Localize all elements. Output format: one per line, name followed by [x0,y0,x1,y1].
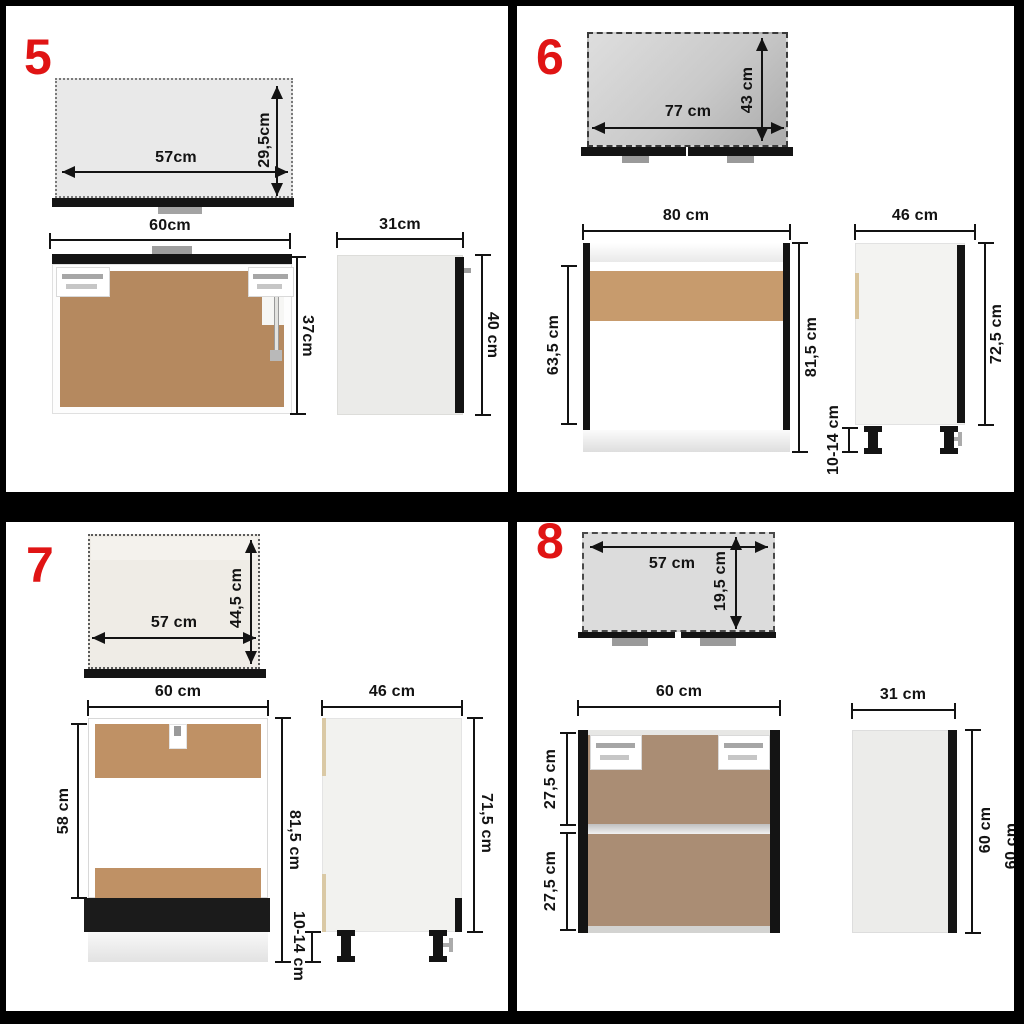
panel-6-leg-height-dim-line [848,428,850,452]
panel-6-side-leg-left [868,428,878,452]
panel-5-top-width-label: 57cm [155,149,197,167]
panel-7-side-door-edge [455,898,462,932]
panel-7-front-plinth [84,898,270,932]
panel-7-side-height-dim-line [473,718,475,932]
panel-8-lower-section-label: 27,5 cm [542,851,560,911]
panel-7-front-width-label: 60 cm [155,683,201,701]
panel-6-front-open-area [590,321,783,430]
panel-8-front-width-dim-line [578,706,780,708]
panel-7-top-view-band [91,537,257,560]
panel-7-front-bottom-panel [95,868,261,898]
panel-7-side-leg-bracket [449,938,453,952]
panel-6-top-view-handle-left [622,156,649,163]
panel-6-side-depth-label: 46 cm [892,207,938,225]
panel-5-top-view-front-edge [52,198,294,207]
panel-6-side-height-dim-line [984,243,986,425]
panel-5-top-depth-dim-line [276,86,278,196]
panel-8-side-depth-label: 31 cm [880,686,926,704]
panel-8-top-width-label: 57 cm [649,555,695,573]
panel-7-top-depth-dim-line [250,540,252,664]
panel-8-top-view-handle-right [700,638,736,646]
panel-6-front-top-rail [590,243,783,262]
panel-5-side-height-label: 40 cm [483,312,501,358]
panel-6-front-height-dim-line [798,243,800,452]
panel-6-front-side-panel-left [583,243,590,430]
panel-7-side-depth-label: 46 cm [369,683,415,701]
panel-8-side-depth-dim-line [852,709,955,711]
panel-6-front-interior-height-label: 63,5 cm [545,315,563,375]
panel-5-hinge-right [248,267,294,297]
panel-7-number: 7 [26,540,54,590]
panel-6-number: 6 [536,32,564,82]
panel-7-side-depth-dim-line [322,706,462,708]
panel-7-leg-height-label: 10-14 cm [289,911,307,981]
panel-8-upper-section-dim-line [566,733,568,825]
panel-6-leg-height-label: 10-14 cm [825,405,843,475]
panel-5-side-depth-dim-line [337,238,463,240]
panel-8-top-depth-dim-line [735,537,737,629]
panel-6-front-back-panel [590,271,783,321]
panel-5-front-width-dim-line [50,239,290,241]
panel-8-front-door-edge-right [770,730,780,933]
panel-6-side-height-label: 72,5 cm [988,304,1006,364]
panel-8-side-body [852,730,950,933]
panel-6-side-leg-bracket [958,432,962,446]
panel-7-side-cut-edge-bottom [322,874,326,932]
panel-5-top-width-dim-line [62,171,288,173]
panel-5-side-door-edge [455,257,464,413]
panel-8-hinge-left [590,735,642,770]
product-dimension-sheet: 5 57cm 29,5cm 60cm 37cm 31cm 40 cm 6 [0,0,1024,1024]
panel-5-top-view-handle [158,207,202,214]
panel-7-front-width-dim-line [88,706,268,708]
panel-8-side-height-label: 60 cm [977,807,995,853]
panel-5-top-depth-label: 29,5cm [256,112,274,167]
panel-5-strut-bracket [270,350,282,361]
panel-7-side-leg-right [433,932,443,960]
panel-8-front-width-label: 60 cm [656,683,702,701]
panel-5-hinge-left [56,267,110,297]
panel-8-front-bottom-edge [588,926,770,933]
panel-6-front-plinth [583,430,790,452]
panel-6-front-width-dim-line [583,230,790,232]
panel-8-top-depth-label: 19,5 cm [712,551,730,611]
panel-5-front-width-label: 60cm [149,217,191,235]
panel-5-front-height-label: 37cm [298,315,316,357]
panel-6-top-depth-dim-line [761,38,763,141]
panel-5-number: 5 [24,32,52,82]
panel-7-leg-height-dim-line [311,932,313,962]
panel-8-number: 8 [536,516,564,566]
panel-8-side-height-dim-line [971,730,973,933]
divider-vertical [508,0,517,1024]
panel-6-side-body [855,243,965,425]
panel-7-side-cut-edge-top [322,718,326,776]
panel-6-top-view-handle-right [727,156,754,163]
panel-8-side-door-edge [948,730,957,933]
panel-7-top-depth-label: 44,5 cm [228,568,246,628]
panel-6-side-depth-dim-line [855,230,975,232]
panel-5-side-handle [464,268,471,273]
panel-7-front-base [88,932,268,962]
panel-6-front-side-panel-right [783,243,790,430]
panel-6-top-depth-label: 43 cm [739,67,757,113]
panel-8-top-view-handle-left [612,638,648,646]
panel-7-top-width-label: 57 cm [151,614,197,632]
panel-6-side-door-edge [957,245,965,423]
panel-8-front-door-edge-left [578,730,588,933]
panel-8-upper-section-label: 27,5 cm [542,749,560,809]
panel-7-front-interior-height-label: 58 cm [55,788,73,834]
panel-7-side-body [322,718,462,932]
panel-7-side-leg-left [341,932,351,960]
panel-7-front-notch-fitting [174,726,181,736]
panel-8-hinge-right [718,735,770,770]
panel-6-front-interior-height-dim-line [567,266,569,424]
panel-5-side-depth-label: 31cm [379,216,421,234]
panel-5-front-open-door-edge [52,254,292,264]
panel-8-front-shelf [588,824,770,834]
panel-6-front-height-label: 81,5 cm [803,317,821,377]
panel-6-side-leg-right [944,428,954,452]
panel-6-top-view-door-right [688,147,793,156]
panel-7-top-view-front-edge [84,669,266,678]
panel-5-side-body [337,255,463,415]
panel-7-front-height-label: 81,5 cm [285,810,303,870]
panel-8-lower-section-dim-line [566,833,568,930]
panel-6-front-width-label: 80 cm [663,207,709,225]
panel-5-front-handle [152,246,192,254]
panel-6-side-cut-edge [855,273,859,319]
panel-7-top-width-dim-line [92,637,256,639]
panel-6-top-width-label: 77 cm [665,103,711,121]
panel-7-side-height-label: 71,5 cm [477,793,495,853]
panel-6-top-view-door-left [581,147,686,156]
panel-7-front-interior-height-dim-line [77,724,79,898]
panel-7-front-height-dim-line [281,718,283,962]
